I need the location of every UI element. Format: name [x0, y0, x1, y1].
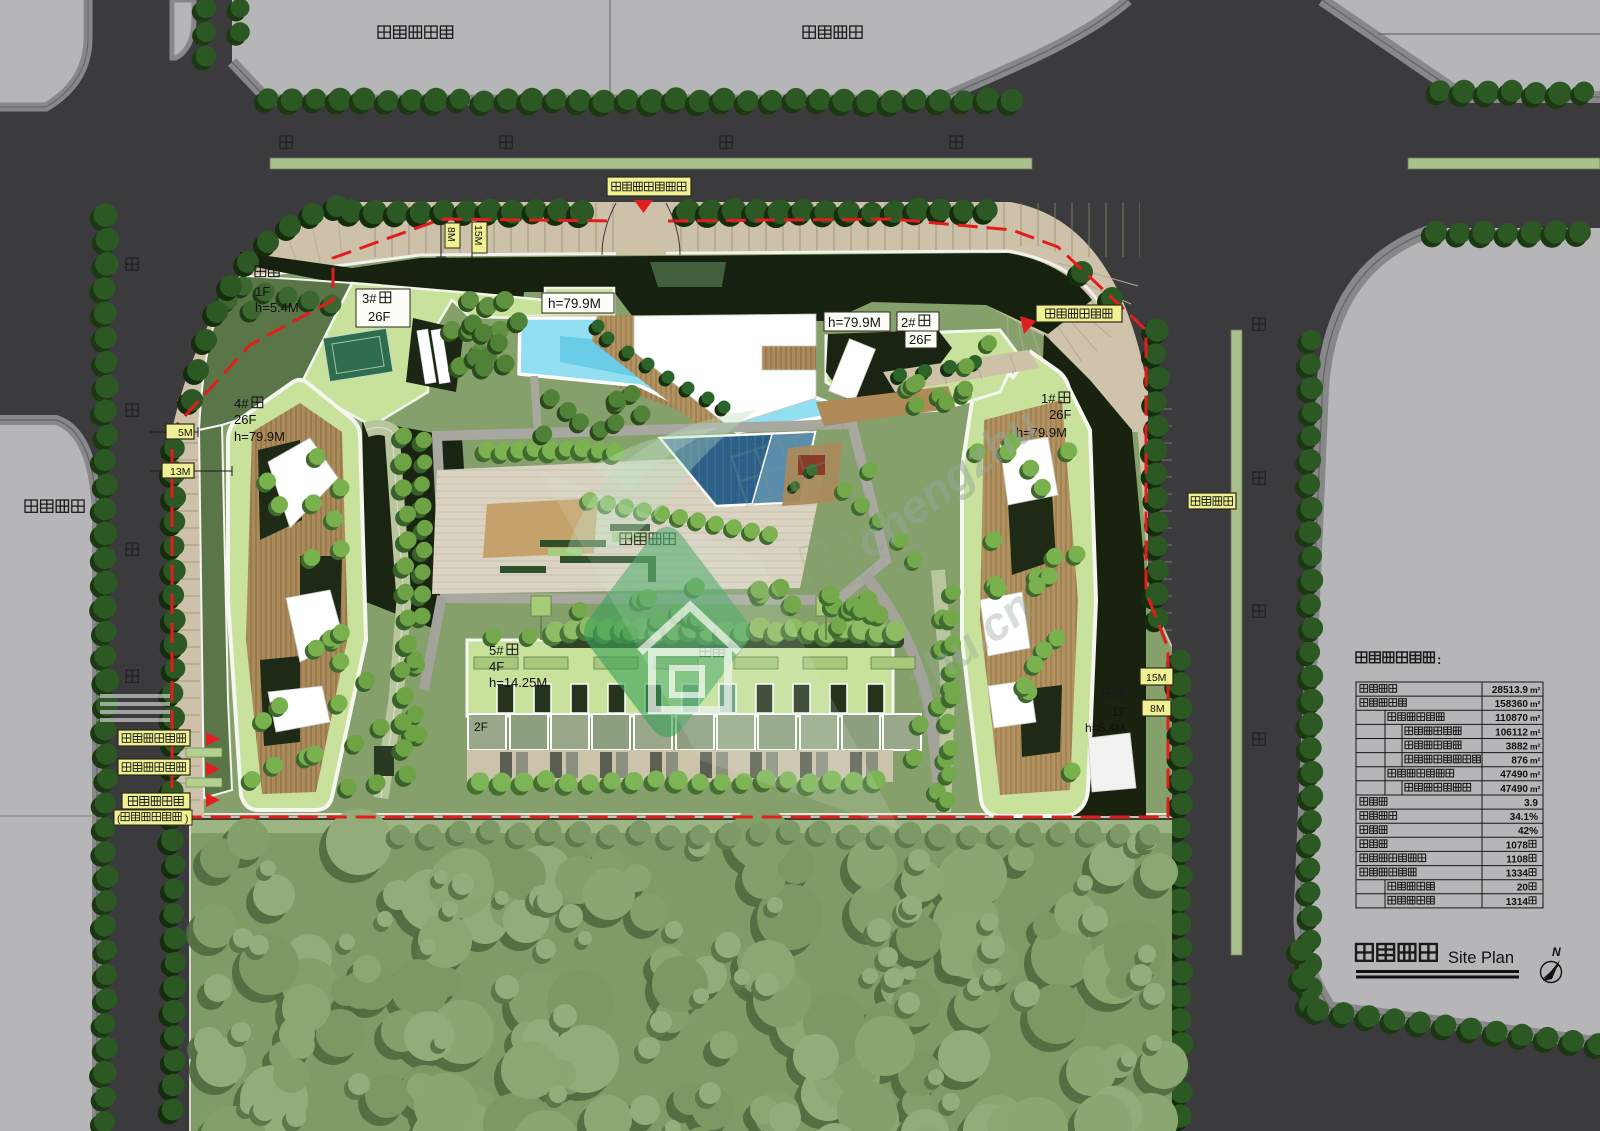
- svg-text:3#: 3#: [362, 291, 377, 306]
- svg-text:3.9: 3.9: [1524, 798, 1538, 809]
- svg-text:N: N: [1552, 945, 1561, 959]
- svg-text:8M: 8M: [445, 227, 457, 242]
- svg-text:m²: m²: [1530, 784, 1541, 794]
- svg-text:2F: 2F: [474, 720, 488, 734]
- svg-text:158360: 158360: [1495, 699, 1529, 710]
- svg-text:2#: 2#: [901, 315, 916, 330]
- svg-text:13M: 13M: [170, 466, 190, 478]
- svg-text:1314: 1314: [1506, 897, 1529, 908]
- svg-text:m²: m²: [1530, 741, 1541, 751]
- svg-text:1334: 1334: [1506, 869, 1529, 880]
- svg-text:28513.9: 28513.9: [1492, 685, 1529, 696]
- svg-text:5M: 5M: [178, 427, 193, 439]
- svg-text:m²: m²: [1530, 699, 1541, 709]
- svg-text:h=79.9M: h=79.9M: [234, 429, 285, 444]
- svg-text:42%: 42%: [1518, 826, 1538, 837]
- svg-text:m²: m²: [1530, 685, 1541, 695]
- svg-text:26F: 26F: [368, 309, 390, 324]
- svg-text:4F: 4F: [489, 659, 504, 674]
- svg-text:20: 20: [1517, 883, 1529, 894]
- svg-text:4#: 4#: [234, 396, 249, 411]
- svg-text:26F: 26F: [234, 412, 256, 427]
- svg-text:m²: m²: [1530, 727, 1541, 737]
- svg-text:1F: 1F: [1112, 705, 1126, 719]
- svg-text:1F: 1F: [255, 284, 270, 299]
- svg-text:110870: 110870: [1495, 713, 1528, 724]
- svg-text:876: 876: [1511, 756, 1528, 767]
- svg-text:h=79.9M: h=79.9M: [828, 315, 881, 330]
- svg-text:26F: 26F: [1049, 407, 1071, 422]
- svg-text:8M: 8M: [1150, 703, 1165, 715]
- svg-text:5#: 5#: [489, 643, 504, 658]
- svg-text:15M: 15M: [1146, 672, 1166, 684]
- svg-text:Site Plan: Site Plan: [1448, 949, 1514, 967]
- svg-text:h=5.4M: h=5.4M: [255, 300, 299, 315]
- svg-text::: :: [1437, 652, 1441, 667]
- svg-text:h=14.25M: h=14.25M: [489, 675, 547, 690]
- svg-text:34.1%: 34.1%: [1510, 812, 1538, 823]
- svg-text:106112: 106112: [1495, 727, 1528, 738]
- svg-text:): ): [185, 814, 188, 825]
- svg-text:m²: m²: [1530, 770, 1541, 780]
- svg-text:m²: m²: [1530, 756, 1541, 766]
- svg-text:3882: 3882: [1506, 741, 1529, 752]
- svg-text:26F: 26F: [909, 332, 931, 347]
- svg-text:h=79.9M: h=79.9M: [548, 296, 601, 311]
- svg-text:15M: 15M: [472, 225, 484, 245]
- svg-text:h=5.4M: h=5.4M: [1085, 721, 1125, 735]
- svg-text:47490: 47490: [1500, 784, 1528, 795]
- svg-text:1#: 1#: [1041, 391, 1056, 406]
- svg-text:1108: 1108: [1506, 854, 1528, 865]
- svg-text:1078: 1078: [1506, 840, 1529, 851]
- svg-text:m²: m²: [1530, 713, 1541, 723]
- svg-text:47490: 47490: [1500, 770, 1528, 781]
